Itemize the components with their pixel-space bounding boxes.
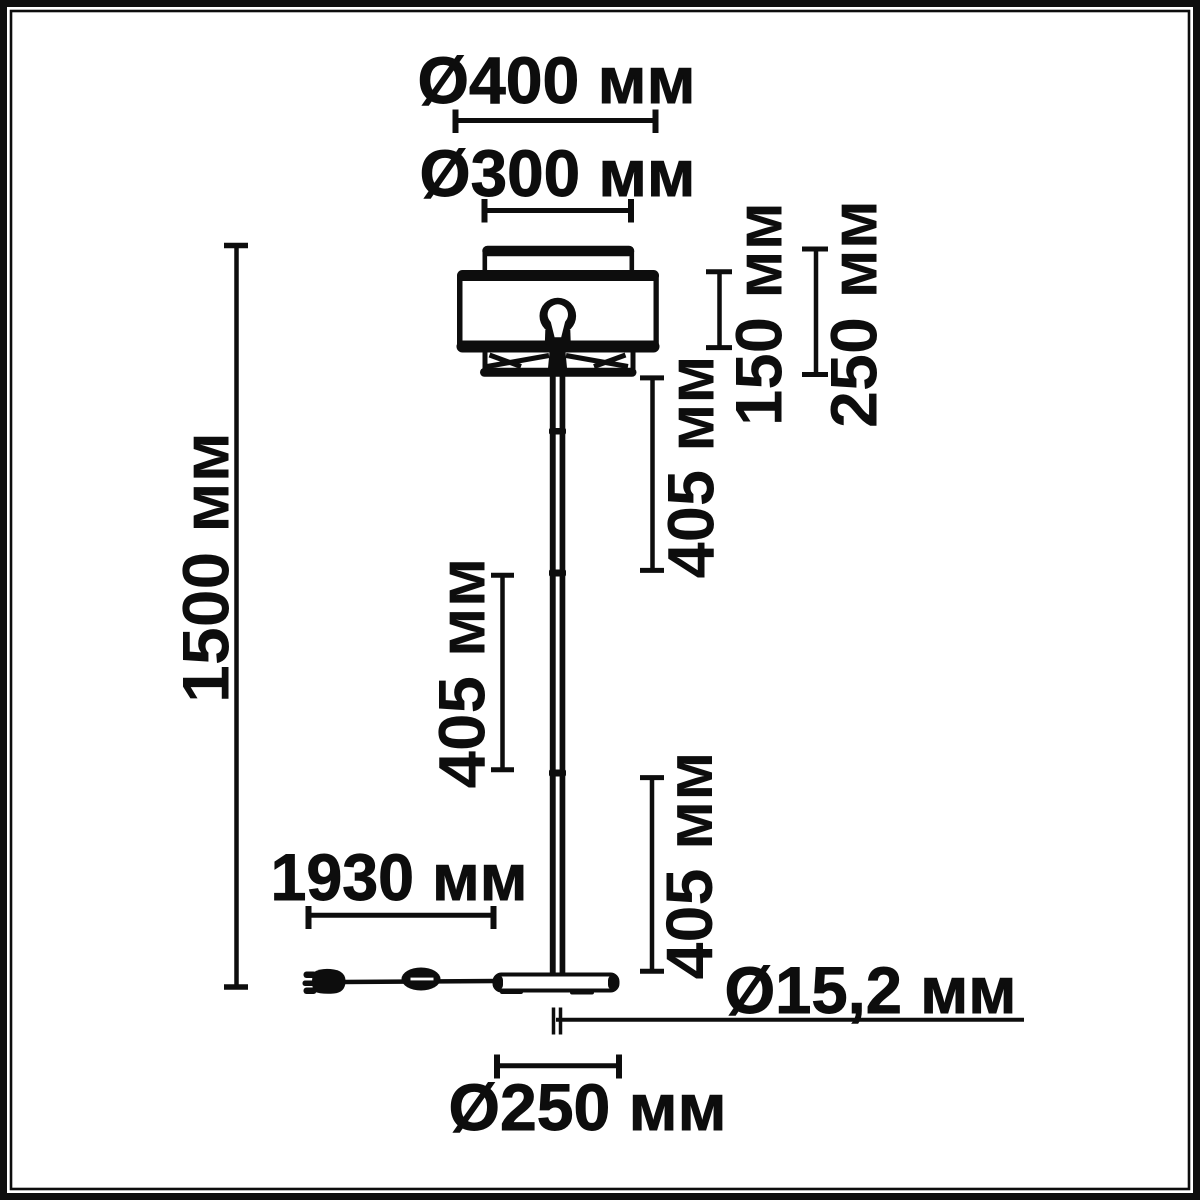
svg-text:405 мм: 405 мм [652, 752, 726, 980]
svg-text:Ø15,2 мм: Ø15,2 мм [725, 953, 1017, 1027]
svg-text:1500 мм: 1500 мм [169, 432, 243, 703]
svg-text:405 мм: 405 мм [425, 558, 499, 789]
svg-text:1930 мм: 1930 мм [271, 840, 528, 914]
svg-text:Ø300 мм: Ø300 мм [420, 136, 696, 210]
svg-text:405 мм: 405 мм [654, 356, 728, 579]
svg-text:150 мм: 150 мм [722, 202, 796, 426]
svg-text:250 мм: 250 мм [817, 200, 891, 428]
svg-text:Ø250 мм: Ø250 мм [449, 1070, 727, 1144]
svg-text:Ø400 мм: Ø400 мм [418, 43, 696, 117]
